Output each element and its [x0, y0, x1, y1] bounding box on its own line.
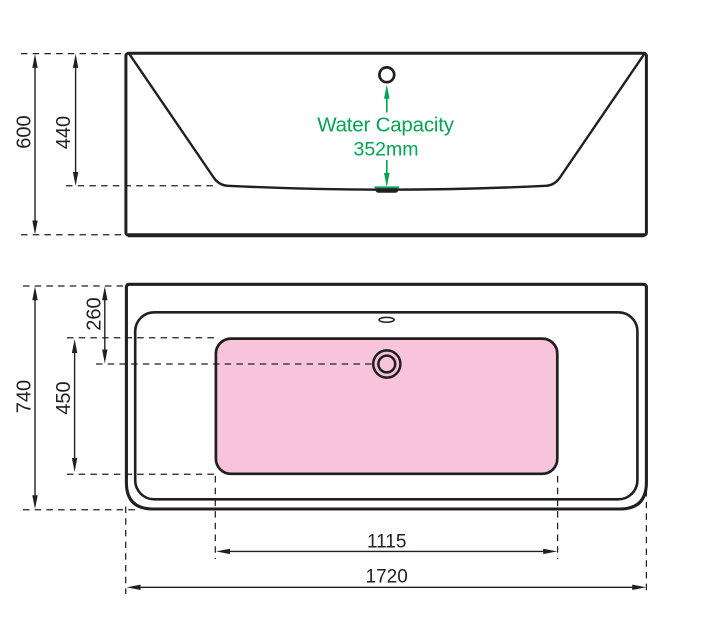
svg-text:Water Capacity: Water Capacity — [317, 114, 455, 137]
svg-text:352mm: 352mm — [353, 139, 418, 161]
svg-text:740: 740 — [14, 380, 36, 413]
svg-text:600: 600 — [14, 115, 36, 148]
svg-text:1115: 1115 — [367, 532, 406, 553]
svg-text:450: 450 — [53, 381, 75, 414]
svg-text:440: 440 — [53, 116, 75, 149]
svg-text:1720: 1720 — [366, 567, 408, 588]
svg-text:260: 260 — [83, 297, 105, 330]
